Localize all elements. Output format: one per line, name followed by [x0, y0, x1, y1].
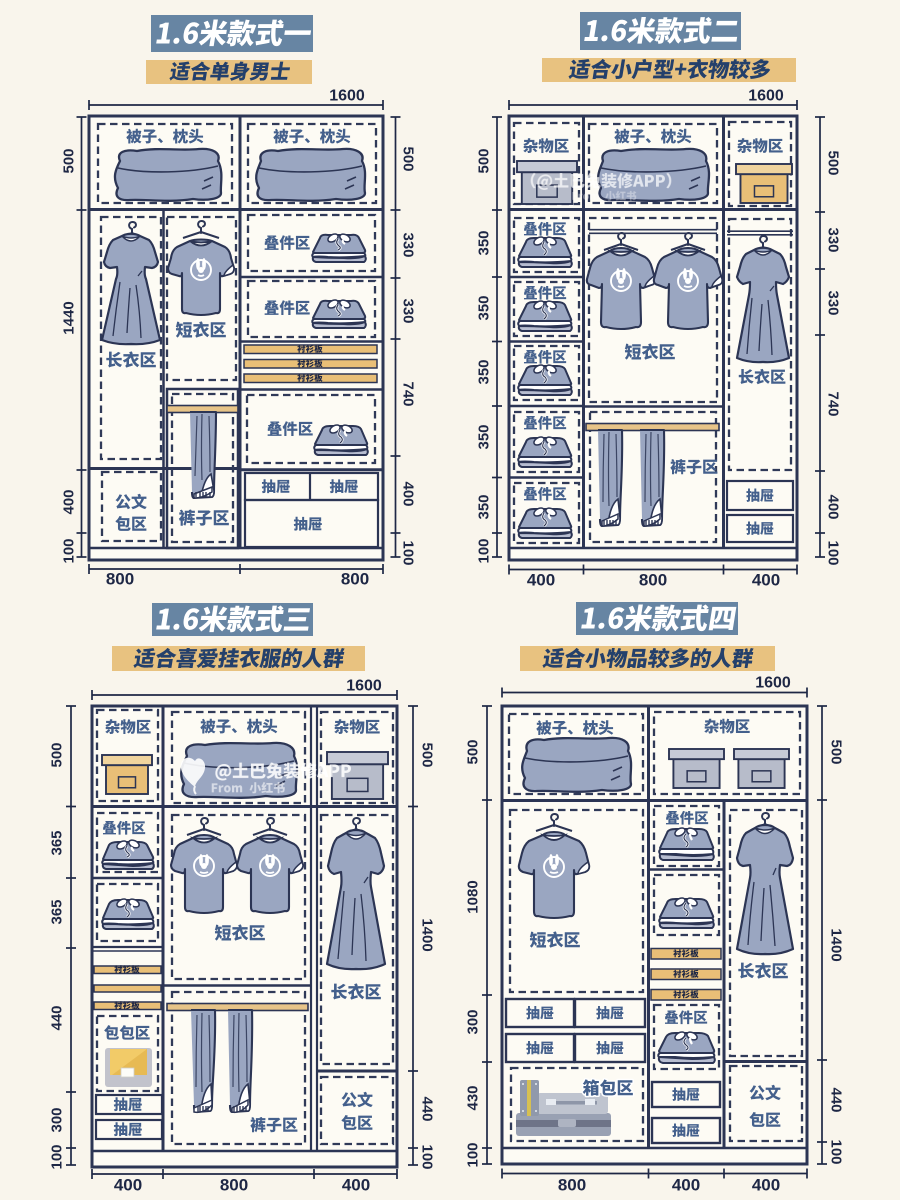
- svg-text:400: 400: [752, 571, 780, 590]
- svg-text:740: 740: [825, 391, 842, 416]
- svg-text:800: 800: [220, 1176, 248, 1195]
- svg-text:100: 100: [400, 540, 417, 565]
- svg-text:300: 300: [465, 1009, 482, 1034]
- svg-text:350: 350: [476, 230, 493, 255]
- svg-text:400: 400: [825, 494, 842, 519]
- svg-text:1600: 1600: [748, 88, 784, 105]
- svg-text:400: 400: [400, 481, 417, 506]
- svg-text:1440: 1440: [61, 301, 78, 334]
- svg-text:500: 500: [476, 148, 493, 173]
- svg-text:500: 500: [465, 739, 482, 764]
- svg-text:100: 100: [61, 538, 78, 563]
- svg-text:350: 350: [476, 295, 493, 320]
- svg-text:350: 350: [476, 424, 493, 449]
- svg-text:740: 740: [400, 381, 417, 406]
- svg-text:400: 400: [61, 489, 78, 514]
- svg-text:330: 330: [400, 232, 417, 257]
- svg-text:1600: 1600: [329, 88, 365, 105]
- svg-text:100: 100: [476, 538, 493, 563]
- svg-text:500: 500: [419, 742, 436, 767]
- svg-text:500: 500: [49, 742, 66, 767]
- svg-text:330: 330: [825, 290, 842, 315]
- svg-text:800: 800: [341, 570, 369, 589]
- svg-text:800: 800: [106, 570, 134, 589]
- svg-text:500: 500: [61, 148, 78, 173]
- svg-text:400: 400: [114, 1176, 142, 1195]
- svg-text:400: 400: [527, 571, 555, 590]
- svg-text:365: 365: [49, 899, 66, 924]
- svg-text:365: 365: [49, 830, 66, 855]
- svg-text:800: 800: [639, 571, 667, 590]
- svg-text:1600: 1600: [755, 675, 791, 692]
- svg-text:400: 400: [752, 1176, 780, 1195]
- svg-text:100: 100: [49, 1144, 66, 1169]
- svg-text:350: 350: [476, 494, 493, 519]
- svg-text:400: 400: [342, 1176, 370, 1195]
- svg-text:500: 500: [828, 739, 845, 764]
- svg-text:100: 100: [419, 1144, 436, 1169]
- svg-text:1400: 1400: [828, 928, 845, 961]
- svg-text:330: 330: [400, 298, 417, 323]
- svg-text:440: 440: [828, 1087, 845, 1112]
- svg-text:800: 800: [558, 1176, 586, 1195]
- svg-text:350: 350: [476, 359, 493, 384]
- svg-text:100: 100: [825, 540, 842, 565]
- svg-text:400: 400: [672, 1176, 700, 1195]
- svg-text:1400: 1400: [419, 918, 436, 951]
- svg-text:100: 100: [465, 1142, 482, 1167]
- svg-text:330: 330: [825, 227, 842, 252]
- svg-text:500: 500: [400, 146, 417, 171]
- svg-text:100: 100: [828, 1139, 845, 1164]
- svg-text:1080: 1080: [465, 880, 482, 913]
- svg-text:500: 500: [825, 150, 842, 175]
- svg-text:1600: 1600: [346, 678, 382, 695]
- svg-text:430: 430: [465, 1085, 482, 1110]
- svg-text:440: 440: [49, 1005, 66, 1030]
- svg-text:300: 300: [49, 1107, 66, 1132]
- svg-text:440: 440: [419, 1096, 436, 1121]
